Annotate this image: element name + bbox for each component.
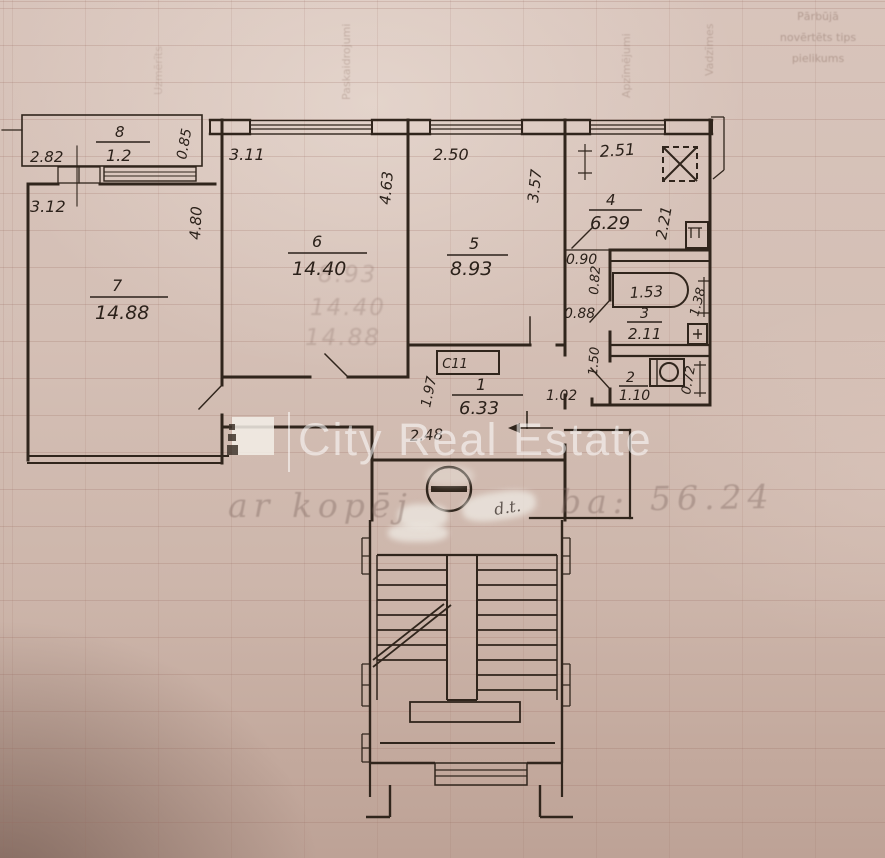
room7-area: 14.88: [95, 302, 149, 324]
room7-number: 7: [112, 276, 123, 295]
bathtub-dim: 1.53: [629, 282, 663, 302]
room2-height-dim: 0.72: [679, 365, 699, 396]
scanned-floor-plan-page: Pārbūjā novērtēts tips pielikums Uzmērīt…: [0, 0, 885, 858]
floor-plan-drawing: 8 1.2 2.82 0.85 3.12 4.80 7 14.88 3.11 4…: [0, 0, 885, 858]
whiteout-patch: [398, 504, 448, 528]
room4-width-dim: 2.51: [599, 140, 636, 161]
room1-entry-dim: 1.02: [546, 388, 577, 404]
vestibule-dim-d: 1.50: [586, 346, 603, 376]
room6-height-dim: 4.63: [376, 171, 397, 206]
room4-area: 6.29: [590, 213, 630, 234]
room7-height-dim: 4.80: [186, 206, 206, 240]
room6-number: 6: [312, 232, 322, 251]
room1-number: 1: [476, 375, 486, 394]
room8-number: 8: [115, 123, 125, 141]
room6-width-dim: 3.11: [229, 145, 265, 164]
stairwell: [362, 520, 573, 817]
room3-area: 2.11: [628, 325, 661, 343]
room8-depth-dim: 0.85: [174, 127, 195, 161]
room7-width-dim: 3.12: [30, 197, 66, 216]
room4-number: 4: [606, 191, 616, 209]
room1-width-dim: 2.48: [409, 425, 443, 445]
room1-height-dim: 1.97: [418, 375, 440, 409]
closet-label: C11: [442, 357, 468, 372]
room5-number: 5: [469, 234, 479, 253]
room6-area: 14.40: [292, 258, 346, 280]
room-labels: 8 1.2 2.82 0.85 3.12 4.80 7 14.88 3.11 4…: [30, 123, 709, 445]
room8-area: 1.2: [106, 146, 131, 165]
vestibule-dim-c: 0.88: [564, 306, 595, 322]
room1-area: 6.33: [459, 398, 499, 419]
room5-height-dim: 3.57: [524, 168, 545, 204]
room5-width-dim: 2.50: [433, 145, 469, 164]
room5-area: 8.93: [450, 258, 492, 280]
room2-number: 2: [626, 370, 635, 386]
vestibule-dim-b: 0.82: [587, 265, 604, 295]
whiteout-patch: [426, 466, 474, 486]
room8-width-dim: 2.82: [30, 148, 63, 166]
room2-area: 1.10: [619, 388, 650, 404]
room4-height-dim: 2.21: [652, 205, 676, 241]
room3-number: 3: [640, 306, 649, 322]
